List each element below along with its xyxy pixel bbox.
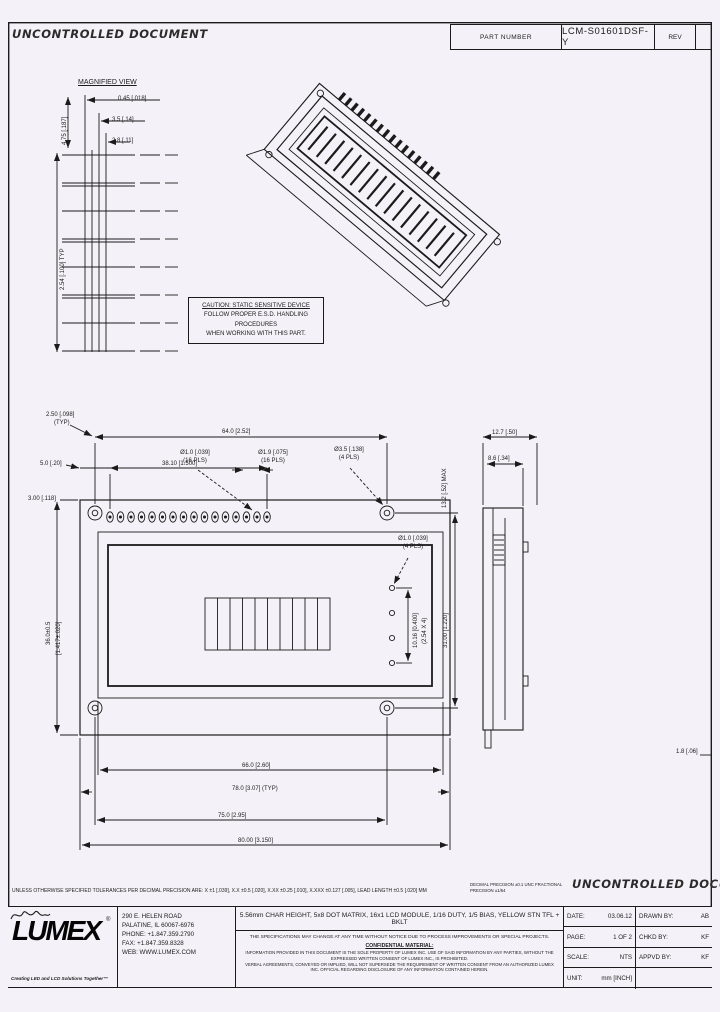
dim-small-hole-value: Ø1.0 [.039] xyxy=(386,536,440,544)
page-label: PAGE: xyxy=(567,934,585,941)
caution-line2: FOLLOW PROPER E.S.D. HANDLING PROCEDURES xyxy=(191,311,321,330)
field-scale: SCALE: NTS xyxy=(564,948,636,968)
detail-view xyxy=(57,95,178,352)
dim-bezel-width: 66.0 [2.60] xyxy=(242,763,270,770)
rev-value xyxy=(696,25,711,49)
approval-signature xyxy=(8,907,52,923)
field-date: DATE: 03.06.12 xyxy=(564,907,636,927)
dim-mount-hole: Ø3.5 [.138] (4 PLS) xyxy=(322,447,376,462)
dim-hole-offset: 2.50 [.098] xyxy=(46,412,74,419)
part-number-value: LCM-S01601DSF-Y xyxy=(562,25,655,49)
dim-pin-pad: Ø1.9 [.075] (16 PLS) xyxy=(246,450,300,465)
dim-pin-hole: Ø1.0 [.039] (16 PLS) xyxy=(168,450,222,465)
field-appvd-by: APPVD BY: KF xyxy=(636,948,712,968)
dim-hole-span-h: 75.0 [2.95] xyxy=(218,813,246,820)
rev-label: REV xyxy=(655,25,696,49)
dim-pin-hole-qty: (16 PLS) xyxy=(168,458,222,466)
dim-pin1-offset: 5.0 [.20] xyxy=(40,461,62,468)
title-block-fields: DATE: 03.06.12 DRAWN BY: AB PAGE: 1 OF 2… xyxy=(564,907,712,987)
uncontrolled-watermark-top: UNCONTROLLED DOCUMENT xyxy=(12,27,208,41)
company-address: 290 E. HELEN ROAD PALATINE, IL 60067-697… xyxy=(118,907,236,987)
dim-typ-width: 78.0 [3.07] (TYP) xyxy=(232,786,278,793)
iso-pin-row xyxy=(338,92,441,180)
part-number-table: PART NUMBER LCM-S01601DSF-Y REV xyxy=(450,24,712,50)
dim-pin-hole-value: Ø1.0 [.039] xyxy=(168,450,222,458)
legal-block: THE SPECIFICATIONS MAY CHANGE AT ANY TIM… xyxy=(236,931,563,987)
lumex-tagline: Creating LED and LCD Solutions Together™ xyxy=(11,976,108,981)
dim-small-hole: Ø1.0 [.039] (4 PLS) xyxy=(386,536,440,551)
confidential-line2: VERBAL AGREEMENTS, CONVEYED OR IMPLIED, … xyxy=(242,962,557,974)
sheet-border xyxy=(9,23,712,988)
address-line: WEB: WWW.LUMEX.COM xyxy=(122,948,231,957)
drawing-sheet: UNCONTROLLED DOCUMENT PART NUMBER LCM-S0… xyxy=(0,0,720,1012)
tolerance-extra: DECIMAL PRECISION ±0.1 UNC FRACTIONAL PR… xyxy=(470,882,566,893)
unit-label: UNIT: xyxy=(567,975,582,982)
date-label: DATE: xyxy=(567,913,585,920)
caution-line1: CAUTION: STATIC SENSITIVE DEVICE xyxy=(191,302,321,311)
chkd-by-value: KF xyxy=(701,934,709,941)
field-unit: UNIT: mm [INCH] xyxy=(564,968,636,988)
appvd-by-label: APPVD BY: xyxy=(639,954,671,961)
part-description: 5.56mm CHAR HEIGHT, 5x8 DOT MATRIX, 16x1… xyxy=(236,907,563,931)
spec-disclaimer: THE SPECIFICATIONS MAY CHANGE AT ANY TIM… xyxy=(242,935,557,940)
dim-overall-width: 80.00 [3.150] xyxy=(238,838,273,845)
dim-top-span: 64.0 [2.52] xyxy=(222,429,250,436)
dim-mount-hole-qty: (4 PLS) xyxy=(322,455,376,463)
unit-value: mm [INCH] xyxy=(601,975,632,982)
dim-height-inch: [1.417±.020] xyxy=(56,622,63,655)
scale-value: NTS xyxy=(620,954,632,961)
dim-pin-b: 2.8 [.11] xyxy=(112,138,133,145)
page-value: 1 OF 2 xyxy=(613,934,632,941)
address-line: PALATINE, IL 60067-6976 xyxy=(122,921,231,930)
lumex-logo-registered: ® xyxy=(106,917,110,923)
isometric-view xyxy=(246,70,510,316)
field-signature xyxy=(636,968,712,988)
dim-pin-pad-value: Ø1.9 [.075] xyxy=(246,450,300,458)
dim-small-hole-qty: (4 PLS) xyxy=(386,544,440,552)
dim-mount-hole-value: Ø3.5 [.138] xyxy=(322,447,376,455)
caution-note: CAUTION: STATIC SENSITIVE DEVICE FOLLOW … xyxy=(188,297,324,344)
dim-detail-pitch: 2.54 [.100] TYP xyxy=(60,248,67,290)
dim-hole-offset-qty: (TYP) xyxy=(54,420,70,427)
address-line: FAX: +1.847.359.8328 xyxy=(122,939,231,948)
title-block: LUMEX ® Creating LED and LCD Solutions T… xyxy=(8,906,712,988)
dim-hole-col-mm: 10.16 [0.400] xyxy=(413,613,420,648)
drawn-by-value: AB xyxy=(701,913,709,920)
address-line: 290 E. HELEN ROAD xyxy=(122,912,231,921)
chkd-by-label: CHKD BY: xyxy=(639,934,668,941)
field-page: PAGE: 1 OF 2 xyxy=(564,927,636,947)
drawing-linework xyxy=(0,0,720,1012)
front-pin-row xyxy=(107,512,271,522)
side-view xyxy=(483,437,711,755)
drawn-by-label: DRAWN BY: xyxy=(639,913,674,920)
dim-hole-span-v: 31.00 [1.220] xyxy=(443,613,450,648)
dim-bezel-thickness: 8.6 [.34] xyxy=(488,456,510,463)
description-block: 5.56mm CHAR HEIGHT, 5x8 DOT MATRIX, 16x1… xyxy=(236,907,564,987)
caution-line3: WHEN WORKING WITH THIS PART. xyxy=(191,330,321,339)
dim-hole-col-note: (2.54 X 4) xyxy=(422,618,429,644)
part-number-label: PART NUMBER xyxy=(451,25,562,49)
confidential-line1: INFORMATION PROVIDED IN THIS DOCUMENT IS… xyxy=(242,950,557,962)
dim-pcb-thickness: 1.8 [.06] xyxy=(676,749,698,756)
appvd-by-value: KF xyxy=(701,954,709,961)
dim-pin-pad-qty: (16 PLS) xyxy=(246,458,300,466)
dim-edge: 3.00 [.118] xyxy=(28,496,56,503)
dim-pin-width: 0.45 [.018] xyxy=(118,96,146,103)
address-line: PHONE: +1.847.359.2790 xyxy=(122,930,231,939)
scale-label: SCALE: xyxy=(567,954,589,961)
date-value: 03.06.12 xyxy=(608,913,632,920)
dim-height-mm: 36.0±0.5 xyxy=(46,622,53,645)
dim-pin-a: 3.5 [.14] xyxy=(112,117,134,124)
uncontrolled-watermark-bottom: UNCONTROLLED DOCUMENT xyxy=(572,877,720,891)
field-chkd-by: CHKD BY: KF xyxy=(636,927,712,947)
dim-thickness: 13.2 [.52] MAX xyxy=(442,468,449,508)
field-drawn-by: DRAWN BY: AB xyxy=(636,907,712,927)
detail-view-title: MAGNIFIED VIEW xyxy=(78,79,137,87)
dim-detail-left: 4.75 [.187] xyxy=(62,117,69,145)
confidential-heading: CONFIDENTIAL MATERIAL: xyxy=(242,943,557,949)
dim-total-thickness: 12.7 [.50] xyxy=(492,430,517,437)
